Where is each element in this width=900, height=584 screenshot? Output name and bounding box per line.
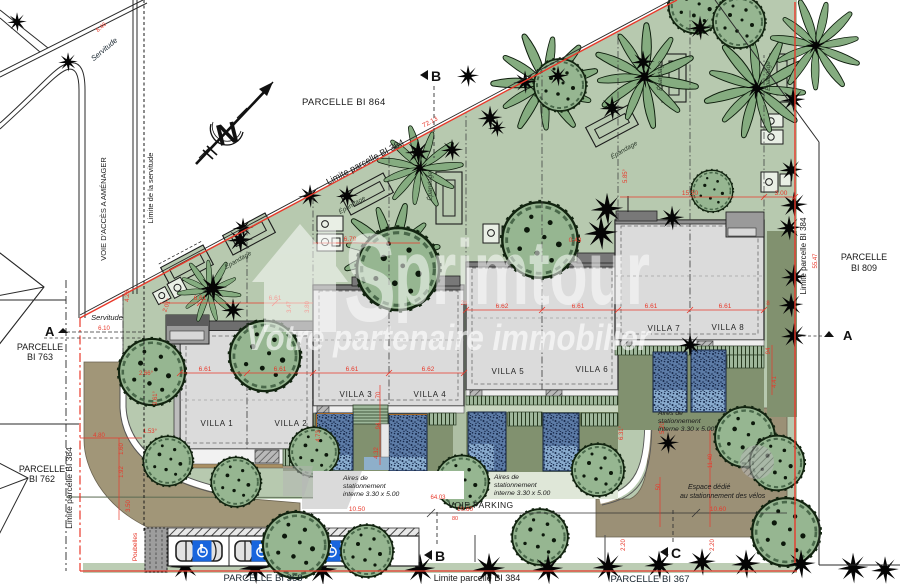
svg-text:A: A xyxy=(45,324,55,339)
svg-text:6.61: 6.61 xyxy=(194,295,207,302)
svg-text:4.28: 4.28 xyxy=(125,290,131,302)
svg-text:4.41: 4.41 xyxy=(772,376,778,388)
svg-text:Aires de: Aires de xyxy=(342,475,368,482)
svg-text:PARCELLE: PARCELLE xyxy=(17,342,63,352)
svg-text:Épandage: Épandage xyxy=(655,61,664,91)
svg-text:VILLA 8: VILLA 8 xyxy=(712,323,745,332)
svg-text:VILLA 3: VILLA 3 xyxy=(340,390,373,399)
svg-text:VOIE D'ACCÈS A AMÉNAGER: VOIE D'ACCÈS A AMÉNAGER xyxy=(99,157,108,261)
svg-text:Poubelles: Poubelles xyxy=(132,532,139,561)
svg-text:94: 94 xyxy=(766,347,772,354)
svg-text:64.03: 64.03 xyxy=(430,495,446,501)
svg-text:6.61: 6.61 xyxy=(719,303,732,310)
svg-text:stationnement: stationnement xyxy=(494,482,538,489)
svg-text:11.40: 11.40 xyxy=(708,453,714,468)
svg-text:10.60: 10.60 xyxy=(710,506,727,513)
svg-text:6.62: 6.62 xyxy=(422,366,435,373)
svg-text:Aires de: Aires de xyxy=(657,410,683,417)
svg-text:C: C xyxy=(671,545,681,561)
svg-text:PARCELLE: PARCELLE xyxy=(841,252,887,262)
svg-text:50: 50 xyxy=(656,483,662,490)
svg-text:1.53°: 1.53° xyxy=(143,429,158,435)
svg-text:2.20: 2.20 xyxy=(621,539,627,551)
svg-text:BI 762: BI 762 xyxy=(29,474,55,484)
svg-text:2.20: 2.20 xyxy=(710,539,716,551)
svg-text:au stationnement des vélos: au stationnement des vélos xyxy=(680,493,766,500)
svg-text:55.47: 55.47 xyxy=(813,253,819,269)
svg-text:A: A xyxy=(843,328,853,343)
svg-text:BI 809: BI 809 xyxy=(851,263,877,273)
svg-text:1.60: 1.60 xyxy=(119,443,125,455)
svg-text:stationnement: stationnement xyxy=(343,483,387,490)
svg-text:Épandage: Épandage xyxy=(763,61,772,91)
svg-text:PARCELLE BI 367: PARCELLE BI 367 xyxy=(610,574,689,584)
svg-text:Espace dédié: Espace dédié xyxy=(688,484,731,491)
svg-text:VILLA 7: VILLA 7 xyxy=(648,324,681,333)
svg-text:PARCELLE BI 368: PARCELLE BI 368 xyxy=(223,573,302,584)
svg-text:Épandage: Épandage xyxy=(425,171,434,201)
svg-text:Limite de la servitude: Limite de la servitude xyxy=(146,153,155,224)
svg-text:VOIE PARKING: VOIE PARKING xyxy=(448,500,513,510)
svg-text:interne 3.30 x 5.00: interne 3.30 x 5.00 xyxy=(658,426,715,433)
svg-text:94: 94 xyxy=(376,422,382,429)
svg-text:PARCELLE BI 864: PARCELLE BI 864 xyxy=(302,97,386,108)
svg-text:1.92: 1.92 xyxy=(119,466,125,478)
svg-text:2.66°: 2.66° xyxy=(139,371,154,377)
svg-text:Votre partenaire immobilier: Votre partenaire immobilier xyxy=(246,317,652,358)
svg-text:VILLA 4: VILLA 4 xyxy=(414,390,447,399)
svg-text:6.31°: 6.31° xyxy=(619,425,625,440)
svg-text:70: 70 xyxy=(376,391,382,398)
svg-text:6.61: 6.61 xyxy=(199,366,212,373)
svg-text:VILLA 6: VILLA 6 xyxy=(576,365,609,374)
svg-text:9.61°: 9.61° xyxy=(153,390,159,405)
svg-text:VILLA 2: VILLA 2 xyxy=(275,419,308,428)
svg-text:4.73: 4.73 xyxy=(316,430,322,442)
svg-text:interne 3.30 x 5.00: interne 3.30 x 5.00 xyxy=(343,491,400,498)
svg-text:BI 763: BI 763 xyxy=(27,352,53,362)
svg-text:6.61: 6.61 xyxy=(346,366,359,373)
svg-text:15.50: 15.50 xyxy=(682,190,699,197)
svg-text:Servitude: Servitude xyxy=(91,313,123,322)
svg-text:3.50: 3.50 xyxy=(126,500,132,512)
svg-text:primtour: primtour xyxy=(394,222,650,324)
svg-text:B: B xyxy=(435,548,445,564)
svg-text:Limite parcelle BI 384: Limite parcelle BI 384 xyxy=(799,217,808,294)
svg-text:Limite parcelle BI 384: Limite parcelle BI 384 xyxy=(64,447,74,529)
svg-text:5.85°: 5.85° xyxy=(623,168,629,183)
svg-text:VILLA 1: VILLA 1 xyxy=(201,419,234,428)
svg-text:VILLA 5: VILLA 5 xyxy=(492,367,525,376)
svg-text:6.61: 6.61 xyxy=(274,366,287,373)
svg-text:4.32: 4.32 xyxy=(374,447,380,459)
svg-text:stationnement: stationnement xyxy=(658,418,702,425)
svg-text:3.00: 3.00 xyxy=(775,190,788,197)
svg-text:Limite parcelle BI 384: Limite parcelle BI 384 xyxy=(434,573,521,583)
svg-text:80: 80 xyxy=(452,516,458,522)
svg-text:Aires de: Aires de xyxy=(493,474,519,481)
svg-text:10.50: 10.50 xyxy=(349,506,366,513)
svg-text:PARCELLE: PARCELLE xyxy=(19,464,65,474)
svg-text:6.10: 6.10 xyxy=(98,326,110,332)
svg-text:B: B xyxy=(431,68,441,84)
svg-text:interne 3.30 x 5.00: interne 3.30 x 5.00 xyxy=(494,490,551,497)
